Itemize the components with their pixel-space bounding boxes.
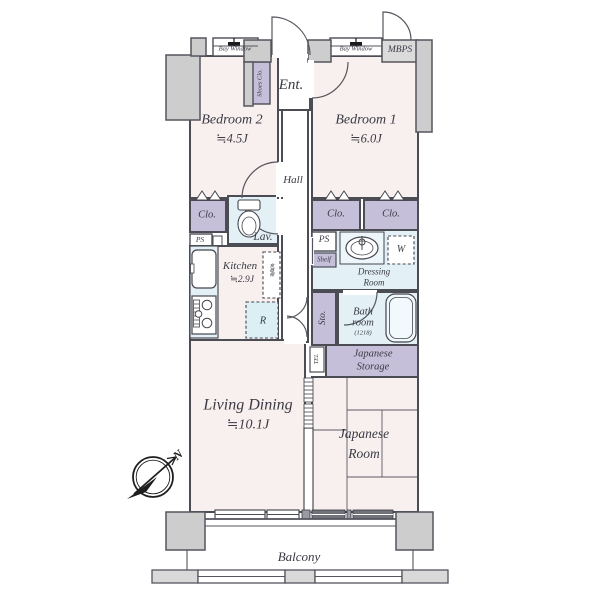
cupboard-label: 食器棚 <box>269 263 274 277</box>
japanese-storage-label-2: Storage <box>357 361 390 372</box>
compass-icon <box>127 457 176 499</box>
living-size: ≒10.1J <box>227 419 269 434</box>
bath-size-label: (1218) <box>354 331 371 338</box>
japanese-storage-label-1: Japanese <box>353 348 392 359</box>
washbasin-icon <box>340 232 384 264</box>
ps-right-label: PS <box>319 236 330 246</box>
living-label: Living Dining <box>203 398 292 415</box>
bath-label-1: Bath <box>353 306 373 317</box>
kitchen-sink-icon <box>191 250 217 288</box>
dressing-label-2: Room <box>364 278 385 287</box>
bedroom1-label: Bedroom 1 <box>335 114 396 129</box>
fridge-label: R <box>260 315 266 326</box>
shoes-closet-label: Shoes Clo. <box>258 69 265 97</box>
bedroom2-size: ≒4.5J <box>216 132 248 145</box>
partition-wall <box>304 428 313 512</box>
pillar-top-right <box>416 40 432 132</box>
wall-block-shoes <box>244 62 253 106</box>
bedroom1-size: ≒6.0J <box>350 132 382 145</box>
pillar-bottom-left <box>166 512 205 550</box>
shelf-label: Shelf <box>317 256 331 263</box>
closet-left-label: Clo. <box>198 209 216 220</box>
wall-block-entrance-right <box>308 40 331 62</box>
washer-label: W <box>397 245 405 256</box>
bay-window-right-label: Bay Window <box>340 47 373 54</box>
bay-window-left-label: Bay Window <box>219 47 252 54</box>
balcony-label: Balcony <box>278 550 321 564</box>
pillar-bottom-right <box>396 512 433 550</box>
entrance-door-arc <box>272 17 310 55</box>
closet-mid-label: Clo. <box>327 208 345 219</box>
pillar-top-left-tab <box>191 38 206 56</box>
closet-right-label: Clo. <box>382 208 400 219</box>
mbps-label: MBPS <box>388 46 412 56</box>
stove-icon <box>192 296 216 334</box>
storage-sto-label: Sto. <box>319 311 329 326</box>
kitchen-label: Kitchen <box>223 261 257 273</box>
mbps-door-arc <box>383 12 411 40</box>
dressing-label-1: Dressing <box>358 267 390 276</box>
floorplan-page: Bay Window Bay Window MBPS Ent. Shoes Cl… <box>0 0 600 600</box>
japanese-room-label-1: Japanese <box>339 427 389 441</box>
entrance-label: Ent. <box>279 78 304 94</box>
pillar-top-left <box>166 55 200 120</box>
kitchen-size: ≒2.9J <box>230 276 254 286</box>
lavatory-label: Lav. <box>253 231 272 243</box>
bedroom2-label: Bedroom 2 <box>201 114 262 129</box>
ps-left-label: PS <box>196 236 204 244</box>
bath-label-2: room <box>352 317 374 328</box>
bathtub-icon <box>386 294 416 342</box>
tel-label: TEL <box>314 354 320 364</box>
japanese-room-label-2: Room <box>348 447 380 461</box>
hall-label: Hall <box>283 175 303 187</box>
japanese-room-floor <box>312 377 418 512</box>
